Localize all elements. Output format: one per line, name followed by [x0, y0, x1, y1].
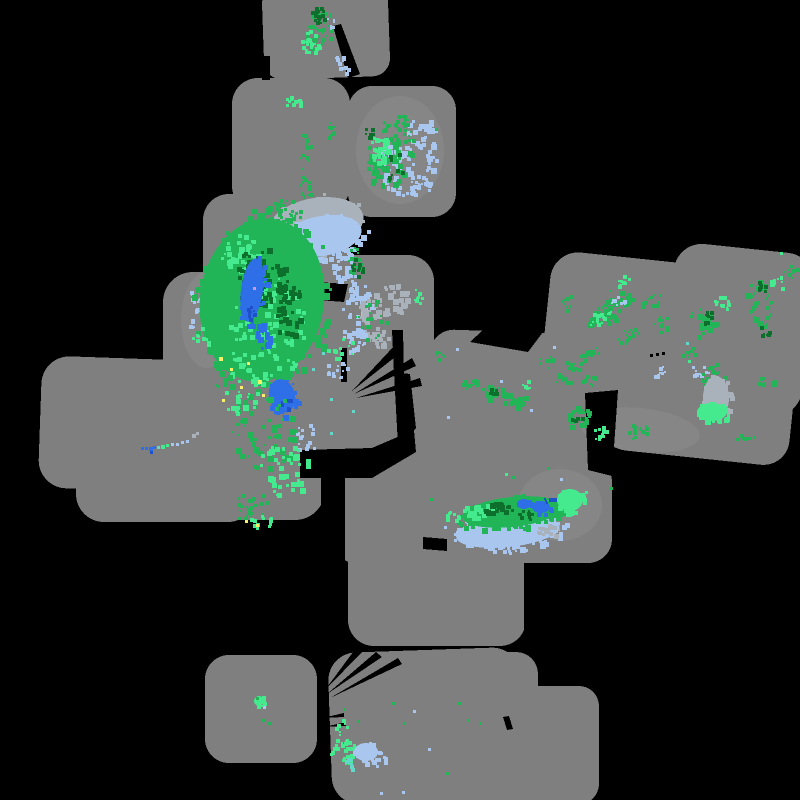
- echo-speck: [330, 398, 333, 401]
- precipitation-echo-pixel: [693, 353, 696, 356]
- precipitation-echo-pixel: [312, 428, 315, 431]
- precipitation-echo-pixel: [295, 325, 299, 329]
- precipitation-echo-pixel: [412, 120, 415, 123]
- precipitation-echo-pixel: [211, 262, 216, 267]
- precipitation-echo-pixel: [475, 521, 478, 524]
- precipitation-echo-pixel: [474, 506, 480, 512]
- precipitation-echo-pixel: [514, 525, 518, 529]
- echo-speck: [157, 446, 160, 449]
- precipitation-echo-pixel: [490, 390, 494, 394]
- precipitation-echo-pixel: [227, 242, 230, 245]
- precipitation-echo-pixel: [261, 494, 265, 498]
- precipitation-echo-pixel: [286, 104, 289, 107]
- precipitation-echo-pixel: [316, 197, 321, 202]
- precipitation-echo-pixel: [351, 353, 353, 355]
- precipitation-echo-pixel: [354, 247, 356, 249]
- precipitation-echo-pixel: [644, 301, 648, 305]
- precipitation-echo-pixel: [420, 147, 423, 150]
- precipitation-echo-pixel: [353, 290, 359, 296]
- precipitation-echo-pixel: [730, 396, 735, 401]
- precipitation-echo-pixel: [444, 526, 447, 529]
- precipitation-echo-pixel: [584, 359, 588, 363]
- precipitation-echo-pixel: [393, 299, 399, 305]
- precipitation-echo-pixel: [560, 496, 563, 499]
- precipitation-echo-pixel: [666, 317, 669, 320]
- precipitation-echo-pixel: [399, 298, 402, 301]
- precipitation-echo-pixel: [527, 381, 530, 384]
- precipitation-echo-pixel: [631, 334, 635, 338]
- precipitation-echo-pixel: [348, 315, 352, 319]
- precipitation-echo-pixel: [191, 319, 195, 323]
- precipitation-echo-pixel: [322, 43, 324, 45]
- precipitation-echo-pixel: [459, 522, 464, 527]
- precipitation-echo-pixel: [343, 330, 347, 334]
- precipitation-echo-pixel: [368, 303, 372, 307]
- precipitation-echo-pixel: [522, 494, 526, 498]
- precipitation-echo-pixel: [659, 372, 661, 374]
- precipitation-echo-pixel: [488, 398, 493, 403]
- precipitation-echo-pixel: [317, 219, 322, 224]
- precipitation-echo-pixel: [597, 352, 600, 355]
- echo-speck: [650, 354, 653, 357]
- precipitation-echo-pixel: [333, 271, 337, 275]
- precipitation-echo-pixel: [692, 366, 695, 369]
- precipitation-echo-pixel: [294, 351, 297, 354]
- precipitation-echo-pixel: [380, 315, 382, 317]
- precipitation-echo-pixel: [628, 331, 630, 333]
- precipitation-echo-pixel: [471, 525, 475, 529]
- precipitation-echo-pixel: [223, 382, 228, 387]
- precipitation-echo-pixel: [261, 705, 263, 707]
- precipitation-echo-pixel: [247, 499, 251, 503]
- precipitation-echo-pixel: [490, 503, 496, 509]
- precipitation-echo-pixel: [378, 751, 382, 755]
- precipitation-echo-pixel: [718, 420, 722, 424]
- precipitation-echo-pixel: [703, 366, 706, 369]
- precipitation-echo-pixel: [263, 702, 267, 706]
- precipitation-echo-pixel: [753, 292, 756, 295]
- precipitation-echo-pixel: [404, 129, 407, 132]
- precipitation-echo-pixel: [262, 696, 266, 700]
- precipitation-echo-pixel: [368, 146, 372, 150]
- precipitation-echo-pixel: [270, 301, 273, 304]
- precipitation-echo-pixel: [745, 438, 748, 441]
- precipitation-echo-pixel: [262, 259, 266, 263]
- precipitation-echo-pixel: [570, 425, 575, 430]
- precipitation-echo-pixel: [226, 246, 231, 251]
- precipitation-echo-pixel: [291, 296, 295, 300]
- echo-speck: [256, 697, 259, 700]
- precipitation-echo-pixel: [298, 463, 301, 466]
- precipitation-echo-pixel: [283, 399, 287, 403]
- precipitation-echo-pixel: [314, 34, 318, 38]
- precipitation-echo-pixel: [229, 259, 234, 264]
- precipitation-echo-pixel: [283, 317, 289, 323]
- precipitation-echo-pixel: [342, 201, 348, 207]
- precipitation-echo-pixel: [307, 138, 309, 140]
- precipitation-echo-pixel: [197, 335, 200, 338]
- precipitation-echo-pixel: [307, 243, 313, 249]
- precipitation-echo-pixel: [492, 527, 496, 531]
- precipitation-echo-pixel: [250, 518, 254, 522]
- precipitation-echo-pixel: [273, 322, 279, 328]
- weather-radar-composite-image: [0, 0, 800, 800]
- echo-speck: [380, 792, 383, 795]
- precipitation-echo-pixel: [503, 401, 508, 406]
- precipitation-echo-pixel: [616, 304, 618, 306]
- precipitation-echo-pixel: [268, 322, 272, 326]
- echo-speck: [530, 409, 533, 412]
- precipitation-echo-pixel: [211, 298, 218, 305]
- precipitation-echo-pixel: [231, 431, 233, 433]
- precipitation-echo-pixel: [446, 518, 450, 522]
- precipitation-echo-pixel: [784, 271, 786, 273]
- precipitation-echo-pixel: [211, 332, 218, 339]
- precipitation-echo-pixel: [766, 316, 770, 320]
- precipitation-echo-pixel: [306, 43, 309, 46]
- precipitation-echo-pixel: [422, 143, 426, 147]
- precipitation-echo-pixel: [550, 356, 552, 358]
- precipitation-echo-pixel: [263, 444, 265, 446]
- precipitation-echo-pixel: [588, 350, 591, 353]
- precipitation-echo-pixel: [338, 62, 342, 66]
- precipitation-echo-pixel: [290, 96, 294, 100]
- precipitation-echo-pixel: [240, 510, 242, 512]
- precipitation-echo-pixel: [524, 550, 526, 552]
- precipitation-echo-pixel: [297, 401, 302, 406]
- precipitation-echo-pixel: [296, 309, 301, 314]
- precipitation-echo-pixel: [563, 303, 565, 305]
- precipitation-echo-pixel: [301, 367, 308, 374]
- precipitation-echo-pixel: [304, 343, 310, 349]
- precipitation-echo-pixel: [321, 257, 324, 260]
- precipitation-echo-pixel: [509, 394, 513, 398]
- precipitation-echo-pixel: [282, 204, 285, 207]
- precipitation-echo-pixel: [482, 528, 486, 532]
- precipitation-echo-pixel: [305, 229, 309, 233]
- echo-speck: [352, 410, 355, 413]
- echo-speck: [150, 451, 153, 454]
- precipitation-echo-pixel: [347, 68, 351, 72]
- precipitation-echo-pixel: [619, 341, 623, 345]
- precipitation-echo-pixel: [241, 260, 245, 264]
- precipitation-echo-pixel: [542, 533, 545, 536]
- precipitation-echo-pixel: [241, 228, 245, 232]
- precipitation-echo-pixel: [781, 281, 783, 283]
- precipitation-echo-pixel: [348, 741, 352, 745]
- precipitation-echo-pixel: [291, 311, 294, 314]
- precipitation-echo-pixel: [484, 545, 488, 549]
- precipitation-echo-pixel: [654, 323, 656, 325]
- precipitation-echo-pixel: [292, 383, 294, 385]
- precipitation-echo-pixel: [593, 313, 597, 317]
- precipitation-echo-pixel: [523, 543, 525, 545]
- precipitation-echo-pixel: [524, 539, 526, 541]
- precipitation-echo-pixel: [372, 133, 375, 136]
- precipitation-echo-pixel: [348, 260, 350, 262]
- precipitation-echo-pixel: [457, 528, 460, 531]
- precipitation-echo-pixel: [355, 239, 361, 245]
- precipitation-echo-pixel: [262, 272, 266, 276]
- precipitation-echo-pixel: [393, 291, 396, 294]
- precipitation-echo-pixel: [283, 294, 288, 299]
- precipitation-echo-pixel: [250, 335, 255, 340]
- precipitation-echo-pixel: [586, 409, 590, 413]
- precipitation-echo-pixel: [787, 269, 789, 271]
- precipitation-echo-pixel: [306, 448, 309, 451]
- precipitation-echo-pixel: [548, 367, 550, 369]
- precipitation-echo-pixel: [299, 157, 301, 159]
- precipitation-echo-pixel: [350, 249, 353, 252]
- precipitation-echo-pixel: [307, 354, 311, 358]
- radar-footprint: [348, 458, 526, 646]
- precipitation-echo-pixel: [336, 747, 340, 751]
- precipitation-echo-pixel: [493, 548, 495, 550]
- precipitation-echo-pixel: [331, 132, 335, 136]
- precipitation-echo-pixel: [501, 388, 505, 392]
- precipitation-echo-pixel: [296, 228, 302, 234]
- echo-speck: [166, 444, 169, 447]
- echo-speck: [161, 445, 165, 449]
- precipitation-echo-pixel: [224, 356, 228, 360]
- precipitation-echo-pixel: [699, 326, 704, 331]
- precipitation-echo-pixel: [290, 416, 296, 422]
- echo-speck: [181, 441, 184, 444]
- precipitation-echo-pixel: [414, 193, 418, 197]
- precipitation-echo-pixel: [544, 520, 548, 524]
- precipitation-echo-pixel: [480, 508, 483, 511]
- precipitation-echo-pixel: [564, 299, 566, 301]
- precipitation-echo-pixel: [659, 294, 662, 297]
- precipitation-echo-pixel: [216, 279, 223, 286]
- precipitation-echo-pixel: [285, 232, 289, 236]
- echo-speck: [196, 432, 199, 435]
- precipitation-echo-pixel: [254, 438, 257, 441]
- echo-speck: [219, 357, 223, 361]
- precipitation-echo-pixel: [284, 380, 288, 384]
- precipitation-echo-pixel: [387, 187, 390, 190]
- precipitation-echo-pixel: [495, 389, 498, 392]
- precipitation-echo-pixel: [342, 308, 345, 311]
- precipitation-echo-pixel: [220, 374, 223, 377]
- echo-speck: [322, 352, 325, 355]
- precipitation-echo-pixel: [292, 286, 296, 290]
- precipitation-echo-pixel: [358, 748, 362, 752]
- echo-speck: [330, 432, 333, 435]
- precipitation-echo-pixel: [342, 719, 346, 723]
- precipitation-echo-pixel: [347, 248, 350, 251]
- precipitation-echo-pixel: [342, 218, 346, 222]
- precipitation-echo-pixel: [202, 337, 206, 341]
- precipitation-echo-pixel: [277, 268, 283, 274]
- precipitation-echo-pixel: [562, 380, 564, 382]
- precipitation-echo-pixel: [381, 343, 387, 349]
- precipitation-echo-pixel: [357, 269, 360, 272]
- precipitation-echo-pixel: [294, 236, 299, 241]
- precipitation-echo-pixel: [369, 294, 372, 297]
- precipitation-echo-pixel: [350, 257, 354, 261]
- precipitation-echo-pixel: [688, 356, 690, 358]
- precipitation-echo-pixel: [755, 301, 759, 305]
- precipitation-echo-pixel: [219, 247, 224, 252]
- precipitation-echo-pixel: [275, 407, 279, 411]
- precipitation-echo-pixel: [710, 311, 714, 315]
- precipitation-echo-pixel: [278, 278, 280, 280]
- precipitation-echo-pixel: [383, 151, 386, 154]
- precipitation-echo-pixel: [279, 474, 285, 480]
- precipitation-echo-pixel: [311, 432, 315, 436]
- precipitation-echo-pixel: [704, 323, 707, 326]
- precipitation-echo-pixel: [363, 342, 366, 345]
- precipitation-echo-pixel: [435, 353, 438, 356]
- precipitation-echo-pixel: [279, 286, 283, 290]
- precipitation-echo-pixel: [221, 238, 225, 242]
- precipitation-echo-pixel: [395, 126, 397, 128]
- precipitation-echo-pixel: [314, 270, 317, 273]
- precipitation-echo-pixel: [265, 208, 272, 215]
- precipitation-echo-pixel: [271, 425, 277, 431]
- precipitation-echo-pixel: [278, 231, 282, 235]
- precipitation-echo-pixel: [570, 490, 575, 495]
- precipitation-echo-pixel: [286, 375, 291, 380]
- precipitation-echo-pixel: [428, 150, 432, 154]
- precipitation-echo-pixel: [270, 392, 274, 396]
- precipitation-echo-pixel: [554, 512, 560, 518]
- precipitation-echo-pixel: [270, 374, 273, 377]
- precipitation-echo-pixel: [371, 128, 375, 132]
- precipitation-echo-pixel: [544, 540, 547, 543]
- precipitation-echo-pixel: [253, 310, 255, 312]
- precipitation-echo-pixel: [308, 51, 311, 54]
- precipitation-echo-pixel: [333, 19, 335, 21]
- echo-speck: [245, 520, 248, 523]
- precipitation-echo-pixel: [265, 501, 269, 505]
- precipitation-echo-pixel: [727, 303, 731, 307]
- precipitation-echo-pixel: [340, 376, 343, 379]
- precipitation-echo-pixel: [299, 210, 303, 214]
- precipitation-echo-pixel: [375, 758, 379, 762]
- precipitation-echo-pixel: [298, 99, 302, 103]
- precipitation-echo-pixel: [727, 300, 730, 303]
- precipitation-echo-pixel: [549, 498, 553, 502]
- precipitation-echo-pixel: [410, 153, 415, 158]
- precipitation-echo-pixel: [766, 306, 770, 310]
- precipitation-echo-pixel: [376, 327, 380, 331]
- precipitation-echo-pixel: [529, 518, 532, 521]
- precipitation-echo-pixel: [379, 304, 382, 307]
- precipitation-echo-pixel: [261, 515, 264, 518]
- precipitation-echo-pixel: [750, 284, 753, 287]
- precipitation-echo-pixel: [634, 436, 637, 439]
- precipitation-echo-pixel: [284, 339, 288, 343]
- precipitation-echo-pixel: [574, 367, 577, 370]
- precipitation-echo-pixel: [202, 323, 206, 327]
- precipitation-echo-pixel: [237, 357, 242, 362]
- precipitation-echo-pixel: [278, 211, 280, 213]
- precipitation-echo-pixel: [231, 406, 236, 411]
- precipitation-echo-pixel: [250, 506, 254, 510]
- precipitation-echo-pixel: [267, 451, 272, 456]
- precipitation-echo-pixel: [354, 258, 358, 262]
- precipitation-echo-pixel: [607, 313, 609, 315]
- precipitation-echo-pixel: [330, 753, 333, 756]
- precipitation-echo-pixel: [377, 334, 380, 337]
- precipitation-echo-pixel: [256, 392, 260, 396]
- precipitation-echo-pixel: [564, 509, 568, 513]
- echo-speck: [662, 352, 665, 355]
- precipitation-echo-pixel: [438, 358, 442, 362]
- precipitation-echo-pixel: [773, 279, 776, 282]
- precipitation-echo-pixel: [723, 296, 727, 300]
- precipitation-echo-pixel: [340, 352, 344, 356]
- precipitation-echo-pixel: [598, 428, 601, 431]
- precipitation-echo-pixel: [217, 385, 220, 388]
- precipitation-echo-pixel: [357, 333, 362, 338]
- precipitation-echo-pixel: [421, 297, 424, 300]
- precipitation-echo-pixel: [625, 334, 627, 336]
- echo-speck: [402, 791, 405, 794]
- precipitation-echo-pixel: [708, 372, 710, 374]
- precipitation-echo-pixel: [314, 43, 316, 45]
- precipitation-echo-pixel: [367, 299, 371, 303]
- echo-speck: [688, 360, 691, 363]
- precipitation-echo-pixel: [220, 343, 225, 348]
- precipitation-echo-pixel: [295, 212, 298, 215]
- precipitation-echo-pixel: [745, 293, 751, 299]
- precipitation-echo-pixel: [570, 363, 572, 365]
- precipitation-echo-pixel: [517, 504, 520, 507]
- precipitation-echo-pixel: [429, 128, 435, 134]
- precipitation-echo-pixel: [237, 267, 242, 272]
- precipitation-echo-pixel: [344, 723, 346, 725]
- precipitation-echo-pixel: [291, 200, 295, 204]
- echo-speck: [686, 342, 689, 345]
- precipitation-echo-pixel: [529, 387, 531, 389]
- precipitation-echo-pixel: [251, 240, 254, 243]
- precipitation-echo-pixel: [373, 148, 377, 152]
- precipitation-echo-pixel: [541, 527, 545, 531]
- precipitation-echo-pixel: [287, 359, 290, 362]
- precipitation-echo-pixel: [264, 700, 266, 702]
- precipitation-echo-pixel: [601, 433, 604, 436]
- precipitation-echo-pixel: [304, 178, 308, 182]
- precipitation-echo-pixel: [335, 744, 338, 747]
- precipitation-echo-pixel: [576, 417, 580, 421]
- precipitation-echo-pixel: [767, 294, 770, 297]
- precipitation-echo-pixel: [298, 443, 300, 445]
- precipitation-echo-pixel: [376, 170, 380, 174]
- precipitation-echo-pixel: [308, 329, 313, 334]
- precipitation-echo-pixel: [271, 446, 274, 449]
- precipitation-echo-pixel: [258, 368, 261, 371]
- precipitation-echo-pixel: [309, 424, 313, 428]
- precipitation-echo-pixel: [266, 398, 269, 401]
- precipitation-echo-pixel: [466, 543, 470, 547]
- precipitation-echo-pixel: [348, 758, 352, 762]
- precipitation-echo-pixel: [431, 168, 437, 174]
- precipitation-echo-pixel: [339, 347, 342, 350]
- precipitation-echo-pixel: [476, 516, 481, 521]
- precipitation-echo-pixel: [368, 136, 372, 140]
- precipitation-echo-pixel: [427, 166, 431, 170]
- precipitation-echo-pixel: [384, 757, 388, 761]
- precipitation-echo-pixel: [594, 429, 597, 432]
- precipitation-echo-pixel: [259, 352, 264, 357]
- precipitation-echo-pixel: [636, 426, 638, 428]
- precipitation-echo-pixel: [203, 266, 210, 273]
- precipitation-echo-pixel: [221, 243, 224, 246]
- precipitation-echo-pixel: [309, 221, 312, 224]
